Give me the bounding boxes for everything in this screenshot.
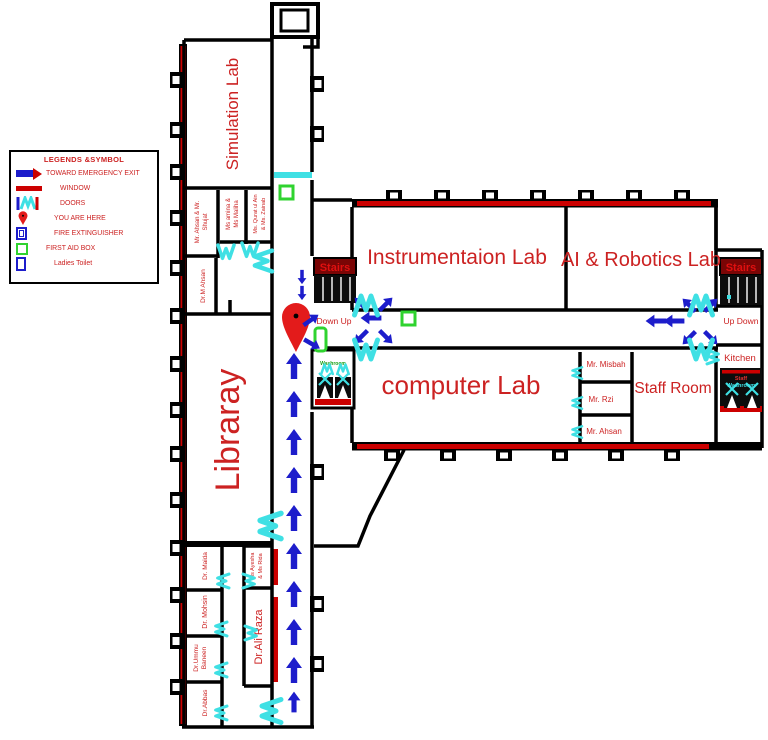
door-icon	[16, 196, 40, 211]
room-label-ahsan-shujat: Mr. Ahsan & Mr. Shujat	[195, 200, 209, 243]
wall-bump	[173, 544, 180, 552]
stairs-right: Stairs Up Down	[720, 258, 762, 326]
door-icon	[243, 574, 254, 588]
wall-bump	[173, 312, 180, 320]
emergency-exit-arrow-icon	[646, 315, 667, 328]
stairs-right-direction: Up Down	[724, 316, 759, 326]
stairs-icon	[314, 275, 356, 303]
emergency-exit-arrow-icon	[298, 270, 307, 284]
wall-bump	[315, 660, 322, 668]
room-label-computer-lab: computer Lab	[382, 370, 541, 400]
svg-text:Ms. Qurat ul Ain: Ms. Qurat ul Ain	[253, 194, 259, 233]
room-label-staff-room: Staff Room	[634, 380, 711, 397]
wall-bump	[500, 453, 508, 459]
emergency-exit-arrow-icon	[664, 315, 685, 328]
wall-bump	[173, 264, 180, 272]
wall-bump	[173, 406, 180, 414]
wall-bump	[388, 453, 396, 459]
wall-bump	[556, 453, 564, 459]
wall-bump	[173, 168, 180, 176]
wall-bump	[173, 214, 180, 222]
door-icon	[216, 663, 227, 677]
room-label-library: Libraray	[209, 369, 247, 492]
wall-bump	[173, 126, 180, 134]
door-icon	[355, 296, 378, 315]
svg-text:& Ms. Zainab: & Ms. Zainab	[261, 198, 267, 230]
door-icon	[573, 426, 583, 438]
room-label-ahsan: Mr. Ahsan	[586, 427, 622, 436]
stairs-left-direction: Down Up	[317, 316, 352, 326]
svg-text:Shujat: Shujat	[203, 213, 209, 230]
wall-bump	[534, 193, 542, 199]
emergency-exit-arrow-icon	[286, 619, 302, 645]
room-label-simulation-lab: Simulation Lab	[223, 58, 242, 170]
door-icon	[690, 296, 713, 315]
emergency-exit-arrow-icon	[286, 353, 302, 379]
stairs-icon	[720, 275, 762, 305]
door-icon	[216, 706, 227, 720]
legend-item-fire-extinguisher: FIRE EXTINGUISHER	[16, 226, 152, 241]
kitchen-label: Kitchen	[724, 353, 756, 364]
emergency-exit-arrow-icon	[16, 168, 42, 180]
door-icon	[255, 251, 272, 272]
legend-item-ladies-toilet: Ladies Toilet	[16, 256, 152, 271]
wall-bump	[630, 193, 638, 199]
wall-bump	[582, 193, 590, 199]
emergency-exit-arrow-icon	[288, 692, 301, 713]
door-icon	[573, 397, 583, 409]
door-icon	[262, 700, 281, 723]
svg-text:Baneen: Baneen	[201, 646, 208, 669]
legend-item-emergency-exit: TOWARD EMERGENCY EXIT	[16, 166, 152, 181]
door-icon	[355, 340, 378, 359]
room-label-ummu-baneen: Dr.Ummu Baneen	[193, 644, 208, 672]
door-icon	[218, 574, 229, 588]
svg-text:Ms Maliha: Ms Maliha	[234, 200, 240, 228]
wall-bump	[173, 591, 180, 599]
wall-bump	[438, 193, 446, 199]
emergency-exit-arrow-icon	[376, 327, 397, 348]
walls	[182, 4, 762, 727]
evacuation-floor-plan: Stairs Down Up Stairs Up Down Washroom K…	[0, 0, 768, 740]
legend-item-window: WINDOW	[16, 181, 152, 196]
wall-bump	[612, 453, 620, 459]
wall-bump	[173, 496, 180, 504]
room-label-ayesha-rida: Ms Ayesha & Ms Rida	[250, 552, 264, 580]
floor-plan-map: Stairs Down Up Stairs Up Down Washroom K…	[0, 0, 768, 740]
window-line-icon	[16, 186, 42, 191]
room-label-amina-maliha: Ms amina & Ms Maliha	[226, 198, 240, 230]
wall-bump	[444, 453, 452, 459]
location-pin-icon	[16, 211, 30, 226]
wall-bump	[678, 193, 686, 199]
legend-title: LEGENDS &SYMBOL	[16, 155, 152, 164]
legend-item-you-are-here: YOU ARE HERE	[16, 211, 152, 226]
wall-bump	[315, 80, 322, 88]
fire-extinguisher-icon	[16, 227, 27, 240]
emergency-exit-arrow-icon	[286, 467, 302, 493]
legend-item-first-aid: FIRST AID BOX	[16, 241, 152, 256]
svg-text:Ms amina &: Ms amina &	[226, 198, 232, 230]
wall-bump	[173, 637, 180, 645]
stairs-right-label: Stairs	[726, 262, 757, 274]
wall-bump	[173, 450, 180, 458]
door-icon	[216, 622, 227, 636]
ladies-toilet-icon	[16, 257, 26, 271]
wall-bump	[315, 600, 322, 608]
room-label-qurat-zainab: Ms. Qurat ul Ain & Ms. Zainab	[253, 194, 267, 233]
legend-item-doors: DOORS	[16, 196, 152, 211]
legend-box: LEGENDS &SYMBOL TOWARD EMERGENCY EXIT WI…	[9, 150, 159, 284]
room-label-m-ahsan: Dr.M Ahsan	[200, 269, 207, 303]
emergency-exit-arrow-icon	[286, 581, 302, 607]
door-icon	[573, 367, 583, 379]
wall-bump	[668, 453, 676, 459]
room-label-misbah: Mr. Misbah	[586, 360, 625, 369]
first-aid-box-icon	[16, 243, 28, 255]
stairs-left-label: Stairs	[320, 262, 351, 274]
svg-text:Dr.Ummu: Dr.Ummu	[193, 644, 200, 672]
wall-bump	[173, 76, 180, 84]
emergency-exit-arrow-icon	[286, 505, 302, 531]
room-label-rzi: Mr. Rzi	[589, 395, 614, 404]
door-icon	[274, 172, 312, 178]
room-label-mohsin: Dr. Mohsin	[202, 595, 209, 629]
door-icon	[218, 245, 234, 258]
room-label-maida: Dr. Maida	[202, 552, 209, 580]
emergency-exit-arrow-icon	[286, 429, 302, 455]
svg-text:& Ms Rida: & Ms Rida	[258, 552, 264, 578]
room-label-abbas: Dr.Abbas	[202, 689, 209, 716]
room-label-ai-robotics-lab: AI & Robotics Lab	[561, 249, 721, 271]
door-icon	[260, 513, 281, 538]
wall-bump	[486, 193, 494, 199]
wall-bump	[173, 360, 180, 368]
wall-bump	[315, 130, 322, 138]
wall-bump	[315, 468, 322, 476]
wall-bump	[173, 683, 180, 691]
location-pin-icon	[282, 303, 310, 352]
room-label-instrumentation-lab: Instrumentaion Lab	[367, 246, 547, 269]
first-aid-box-icon	[280, 186, 293, 199]
emergency-exit-arrow-icon	[286, 391, 302, 417]
svg-text:Mr. Ahsan & Mr.: Mr. Ahsan & Mr.	[195, 200, 201, 243]
staff-washroom-label-1: Staff	[735, 376, 747, 382]
emergency-exit-arrow-icon	[286, 657, 302, 683]
first-aid-box-icon	[402, 312, 415, 325]
stairs-left: Stairs Down Up	[314, 258, 356, 326]
wall-bump	[390, 193, 398, 199]
emergency-exit-arrow-icon	[298, 286, 307, 300]
emergency-exit-arrow-icon	[286, 543, 302, 569]
